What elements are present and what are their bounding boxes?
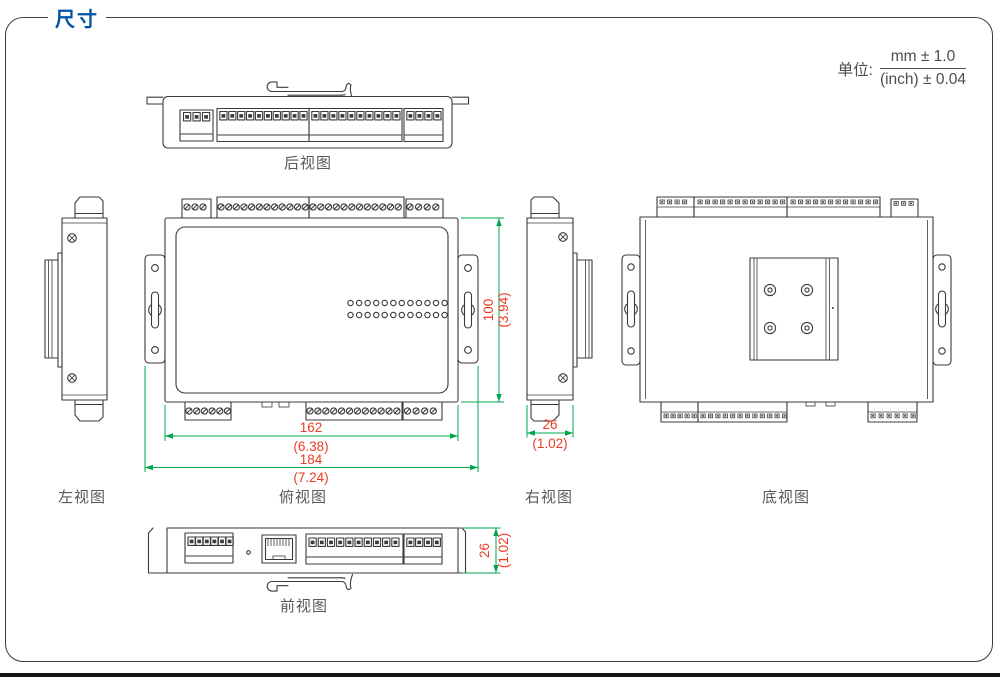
left-bottom-terminal [75, 400, 103, 421]
dim-front-26-inch: (1.02) [496, 533, 511, 568]
dim-right-26-inch: (1.02) [532, 436, 567, 451]
bottom-view-label: 底视图 [762, 489, 810, 506]
dim-right-26-mm: 26 [542, 417, 557, 432]
rear-body [163, 97, 452, 149]
dimension-depth-right-26: 26 (1.02) [527, 405, 573, 451]
din-rail-bracket [577, 260, 592, 358]
right-view-label: 右视图 [525, 489, 573, 506]
rear-view-drawing: 后视图 [147, 82, 469, 172]
right-body [527, 218, 573, 400]
dimension-depth-front-26: 26 (1.02) [462, 528, 511, 573]
front-body [167, 528, 458, 573]
bottom-body [640, 217, 933, 402]
left-view-drawing: 左视图 [45, 197, 107, 506]
rear-left-flange [147, 97, 163, 104]
din-rail-clip [267, 575, 352, 592]
top-view-lower-terminals [185, 402, 442, 420]
rear-right-flange [452, 97, 469, 104]
left-mounting-flange [622, 255, 640, 365]
top-view-upper-terminals [182, 197, 443, 218]
front-view-drawing: 前视图 [149, 528, 466, 615]
right-mounting-flange [933, 255, 951, 365]
top-body [165, 218, 458, 402]
bottom-rule [0, 673, 1000, 677]
dim-front-26-mm: 26 [477, 543, 492, 558]
left-view-label: 左视图 [58, 489, 106, 506]
rear-view-label: 后视图 [284, 155, 332, 172]
din-rail-strip [58, 253, 62, 367]
dim-162-mm: 162 [300, 420, 323, 435]
din-rail-bracket [45, 260, 58, 358]
dim-184-inch: (7.24) [293, 470, 328, 485]
dim-100-mm: 100 [481, 299, 496, 322]
right-mounting-flange [458, 255, 478, 363]
technical-drawing-canvas: 后视图 左视图 [0, 0, 1000, 685]
bottom-view-lower-terminals [661, 402, 917, 422]
bottom-view-upper-terminals [657, 197, 918, 218]
right-view-drawing: 右视图 [525, 197, 592, 506]
left-body [62, 218, 107, 400]
right-top-terminal [531, 197, 559, 218]
front-view-label: 前视图 [280, 598, 328, 615]
top-view-label: 俯视图 [279, 489, 327, 506]
dimension-drawing-page: 尺寸 单位: mm ± 1.0 (inch) ± 0.04 [0, 0, 1000, 685]
bottom-view-drawing: 底视图 [622, 197, 951, 506]
dim-100-inch: (3.94) [496, 292, 511, 327]
left-mounting-flange [145, 255, 165, 363]
left-top-terminal [75, 197, 103, 218]
dim-184-mm: 184 [300, 452, 323, 467]
din-rail-strip [573, 253, 577, 367]
